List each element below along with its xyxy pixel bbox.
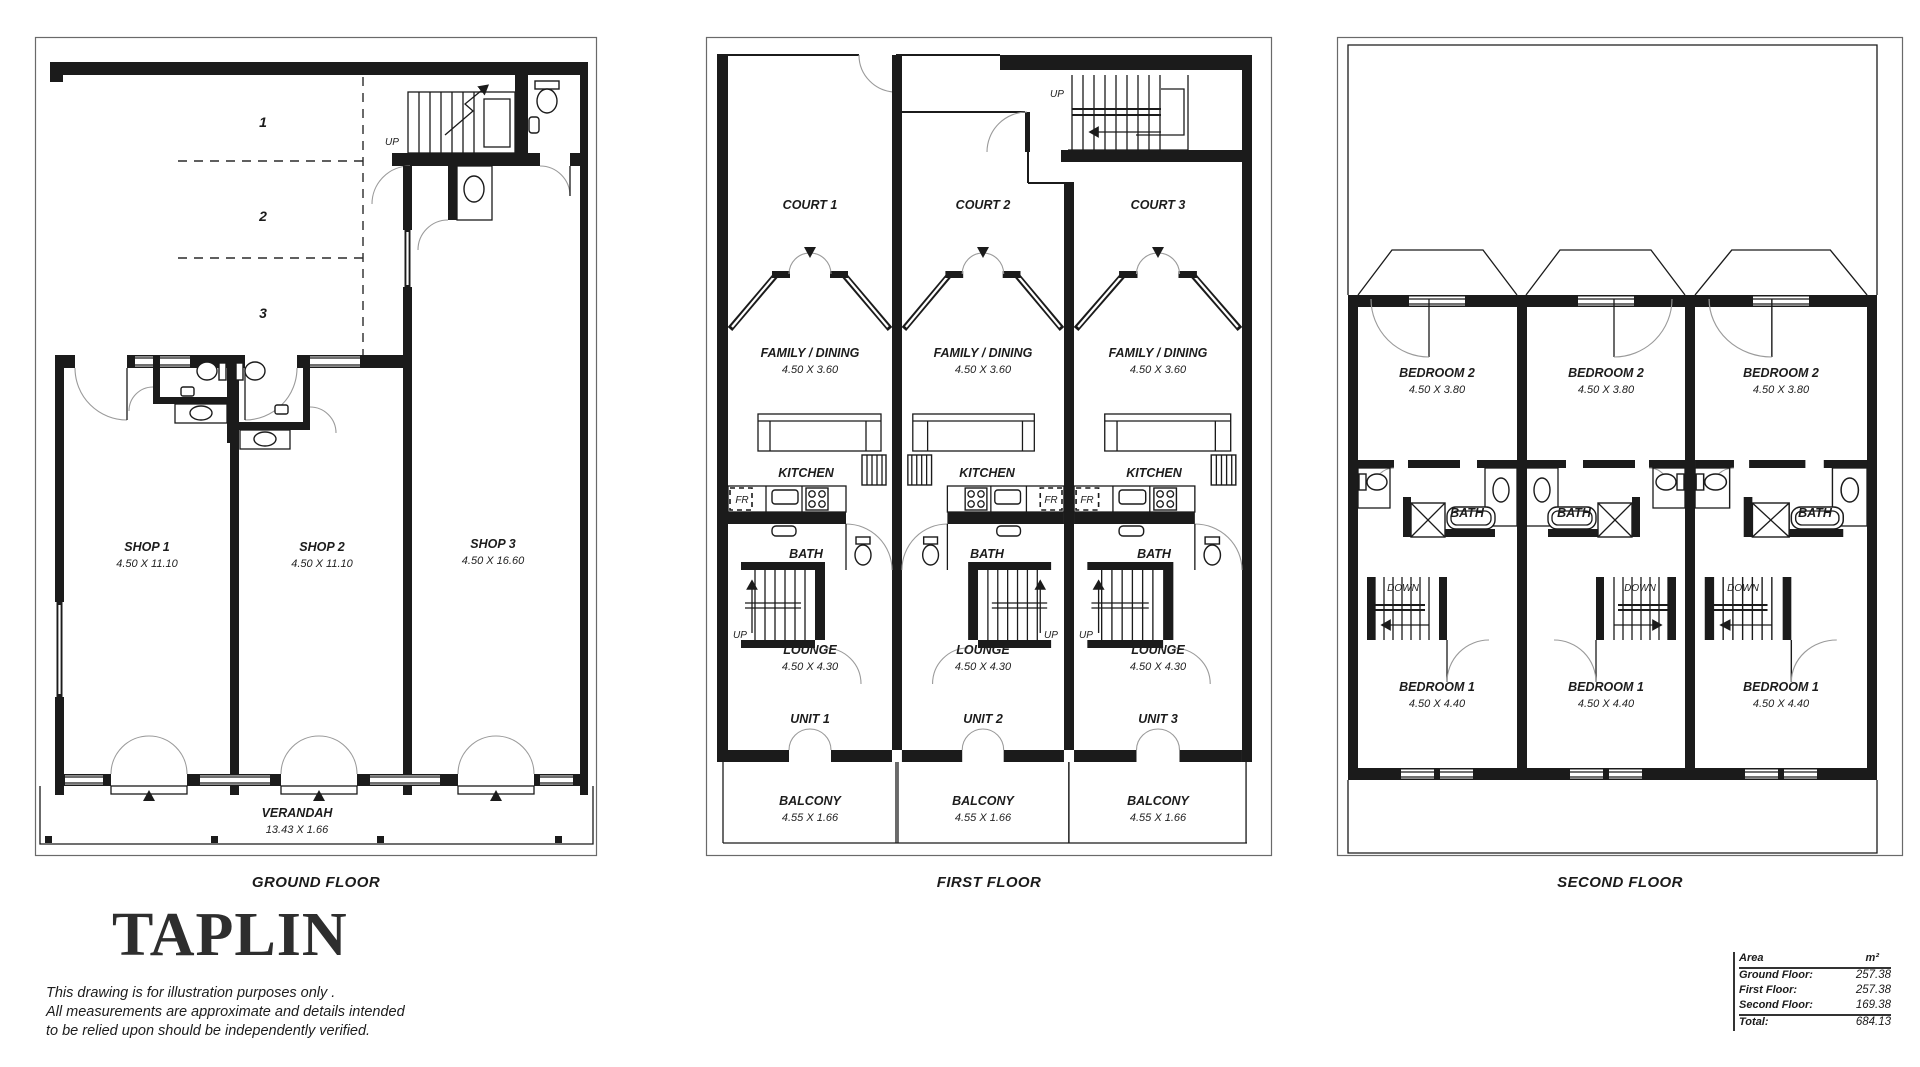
room-dims: 4.50 X 11.10 xyxy=(291,558,353,570)
room-name: SHOP 1 xyxy=(124,540,169,554)
room-name: FAMILY / DINING xyxy=(761,346,860,360)
shopfront-doors xyxy=(55,736,580,801)
room-name: BEDROOM 1 xyxy=(1743,680,1819,694)
room-name: FAMILY / DINING xyxy=(1109,346,1208,360)
room-name: BATH xyxy=(1450,506,1485,520)
room-name: KITCHEN xyxy=(959,466,1016,480)
shop-labels: SHOP 1 4.50 X 11.10 SHOP 2 4.50 X 11.10 … xyxy=(116,537,525,570)
room-dims: 4.55 X 1.66 xyxy=(955,812,1012,824)
court-label: COURT 3 xyxy=(1131,198,1186,212)
room-dims: 4.50 X 4.40 xyxy=(1753,698,1810,710)
ground-floor-label: GROUND FLOOR xyxy=(35,874,597,891)
room-name: LOUNGE xyxy=(783,643,837,657)
shop3-party-wall xyxy=(403,166,412,795)
parking-bays: 1 2 3 xyxy=(178,77,363,355)
room-name: BALCONY xyxy=(952,794,1015,808)
stairs-up: UP xyxy=(385,75,530,166)
room-name: BEDROOM 2 xyxy=(1399,366,1475,380)
up-label: UP xyxy=(733,630,747,641)
wc-cluster xyxy=(129,355,336,449)
area-row: Second Floor: 169.38 xyxy=(1739,999,1891,1014)
area-total-row: Total: 684.13 xyxy=(1739,1014,1891,1031)
entry-arrow xyxy=(977,247,989,258)
area-header-label: Area xyxy=(1739,952,1763,967)
wc-room xyxy=(529,81,588,196)
bay-number: 2 xyxy=(258,208,267,224)
area-row-label: First Floor: xyxy=(1739,984,1797,999)
room-name: BATH xyxy=(789,547,824,561)
shop-walls xyxy=(55,355,239,795)
area-row: First Floor: 257.38 xyxy=(1739,984,1891,999)
area-row: Ground Floor: 257.38 xyxy=(1739,969,1891,984)
unit-3-geometry xyxy=(1695,250,1867,682)
first-floor-plan: UP COURT 1 COURT 2 COURT 3 FAMILY / DINI… xyxy=(706,37,1272,857)
room-dims: 4.50 X 3.60 xyxy=(782,364,839,376)
down-label: DOWN xyxy=(1727,583,1759,594)
disclaimer-line: This drawing is for illustration purpose… xyxy=(46,984,405,1003)
entry-arrow xyxy=(490,790,502,801)
room-name: BATH xyxy=(1798,506,1833,520)
unit-1-geometry xyxy=(1358,250,1517,682)
unit-label: UNIT 2 xyxy=(963,712,1003,726)
court-label: COURT 2 xyxy=(956,198,1011,212)
room-dims: 4.50 X 16.60 xyxy=(462,555,525,567)
second-floor-label: SECOND FLOOR xyxy=(1337,874,1903,891)
balcony-base xyxy=(723,247,1247,843)
room-name: BEDROOM 2 xyxy=(1568,366,1644,380)
second-floor-plan: BEDROOM 2 4.50 X 3.80 BEDROOM 2 4.50 X 3… xyxy=(1337,37,1903,857)
area-row-value: 169.38 xyxy=(1856,999,1891,1014)
up-label: UP xyxy=(385,137,399,148)
room-name: VERANDAH xyxy=(262,806,334,820)
room-name: BEDROOM 2 xyxy=(1743,366,1819,380)
room-name: KITCHEN xyxy=(778,466,835,480)
up-label: UP xyxy=(1050,89,1064,100)
room-name: SHOP 2 xyxy=(299,540,344,554)
disclaimer-line: to be relied upon should be independentl… xyxy=(46,1022,405,1041)
first-floor-label: FIRST FLOOR xyxy=(706,874,1272,891)
down-label: DOWN xyxy=(1387,583,1419,594)
floorplan-sheet: 1 2 3 UP xyxy=(0,0,1920,1067)
entry-arrow xyxy=(313,790,325,801)
room-name: BATH xyxy=(1557,506,1592,520)
room-name: BALCONY xyxy=(1127,794,1190,808)
room-dims: 4.50 X 3.80 xyxy=(1578,384,1635,396)
room-dims: 13.43 X 1.66 xyxy=(266,824,329,836)
area-row-value: 257.38 xyxy=(1856,969,1891,984)
court-label: COURT 1 xyxy=(783,198,838,212)
up-label: UP xyxy=(1079,630,1093,641)
fridge-label: FR xyxy=(1080,495,1093,506)
unit-label: UNIT 3 xyxy=(1138,712,1178,726)
room-name: BEDROOM 1 xyxy=(1568,680,1644,694)
area-row-label: Second Floor: xyxy=(1739,999,1813,1014)
room-dims: 4.50 X 4.30 xyxy=(782,661,839,673)
room-dims: 4.50 X 11.10 xyxy=(116,558,178,570)
room-dims: 4.50 X 3.60 xyxy=(1130,364,1187,376)
disclaimer: This drawing is for illustration purpose… xyxy=(46,984,405,1041)
area-total-label: Total: xyxy=(1739,1016,1769,1031)
room-name: BALCONY xyxy=(779,794,842,808)
area-total-value: 684.13 xyxy=(1856,1016,1891,1031)
unit-label: UNIT 1 xyxy=(790,712,830,726)
area-table: Area m² Ground Floor: 257.38 First Floor… xyxy=(1733,952,1891,1031)
room-name: FAMILY / DINING xyxy=(934,346,1033,360)
room-name: BEDROOM 1 xyxy=(1399,680,1475,694)
fridge-label: FR xyxy=(1044,495,1057,506)
room-name: BATH xyxy=(1137,547,1172,561)
room-name: LOUNGE xyxy=(956,643,1010,657)
room-dims: 4.50 X 3.60 xyxy=(955,364,1012,376)
store-room xyxy=(372,166,492,250)
area-header-unit: m² xyxy=(1866,952,1891,967)
room-name: BATH xyxy=(970,547,1005,561)
room-name: KITCHEN xyxy=(1126,466,1183,480)
entry-arrow xyxy=(143,790,155,801)
area-row-value: 257.38 xyxy=(1856,984,1891,999)
down-label: DOWN xyxy=(1624,583,1656,594)
room-name: SHOP 3 xyxy=(470,537,515,551)
unit-2-geometry xyxy=(1526,250,1685,682)
disclaimer-line: All measurements are approximate and det… xyxy=(46,1003,405,1022)
room-dims: 4.50 X 4.40 xyxy=(1409,698,1466,710)
room-dims: 4.50 X 3.80 xyxy=(1409,384,1466,396)
room-dims: 4.50 X 4.30 xyxy=(1130,661,1187,673)
entry-arrow xyxy=(1152,247,1164,258)
entry-arrow xyxy=(804,247,816,258)
room-dims: 4.50 X 3.80 xyxy=(1753,384,1810,396)
room-dims: 4.55 X 1.66 xyxy=(1130,812,1187,824)
room-dims: 4.50 X 4.30 xyxy=(955,661,1012,673)
lower-roof-strip xyxy=(1348,780,1877,853)
bay-number: 3 xyxy=(259,305,267,321)
room-dims: 4.55 X 1.66 xyxy=(782,812,839,824)
area-table-header: Area m² xyxy=(1739,952,1891,969)
up-label: UP xyxy=(1044,630,1058,641)
fridge-label: FR xyxy=(735,495,748,506)
room-name: LOUNGE xyxy=(1131,643,1185,657)
stairs-up-top: UP xyxy=(1050,75,1248,162)
exterior-walls xyxy=(50,62,588,795)
taplin-logo: TAPLIN xyxy=(112,900,348,971)
area-row-label: Ground Floor: xyxy=(1739,969,1813,984)
roof-outline xyxy=(1348,45,1877,295)
bay-number: 1 xyxy=(259,114,267,130)
ground-floor-plan: 1 2 3 UP xyxy=(35,37,597,857)
plan-border xyxy=(1338,38,1903,856)
room-dims: 4.50 X 4.40 xyxy=(1578,698,1635,710)
